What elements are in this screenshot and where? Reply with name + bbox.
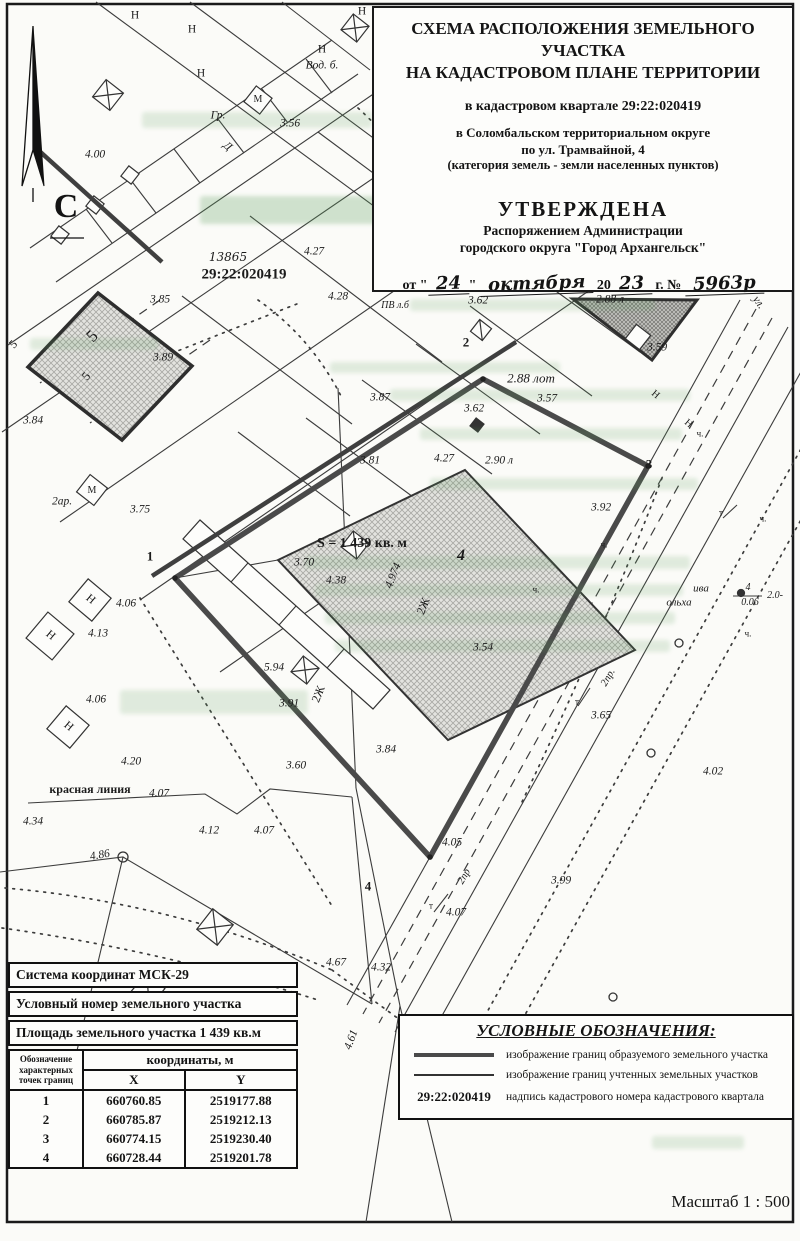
x-column-header: X [83,1070,185,1090]
boundary-point-cell: 1 [9,1090,83,1110]
map-label: т [719,509,723,518]
map-label: 4.07 [254,825,274,837]
map-label: 2.88 л [596,294,624,306]
map-label: 1 [147,550,154,563]
north-label: С [44,188,88,226]
boundary-point-cell: 2519212.13 [185,1110,297,1129]
map-label: Н [649,389,661,401]
map-label: S = 1 439 кв. м [317,537,407,551]
map-label: 4.61 [343,1029,361,1052]
boundary-point-cell: 2519177.88 [185,1090,297,1110]
legend-title: УСЛОВНЫЕ ОБОЗНАЧЕНИЯ: [400,1021,792,1041]
map-label: 3.62 [464,403,484,415]
legend-item-label: изображение границ образуемого земельног… [506,1049,768,1061]
map-label: ч. [697,430,704,439]
map-label: 3.87 [370,392,390,404]
map-label: 2.88 лот [507,372,555,385]
y-column-header: Y [185,1070,297,1090]
address-line: по ул. Трамвайной, 4 [374,142,792,158]
map-label: 2Ж [414,596,431,616]
map-label: 3.56 [280,118,300,130]
date-prefix: от " [403,278,428,293]
boundary-points-table: Обозначение характерных точек границ коо… [8,1049,298,1169]
map-label: 4.67 [326,957,346,969]
map-label: 4 [365,880,372,893]
map-label: 3.89 [153,352,173,364]
legend-item-label: надпись кадастрового номера кадастрового… [506,1091,764,1103]
map-label: 4 [746,583,751,593]
map-label: 3.85 [150,294,170,306]
map-label: ч. [745,630,752,639]
map-label: Н [358,6,366,18]
map-label: 3.99 [551,875,571,887]
map-label: 4.38 [326,575,346,587]
map-label: М [88,486,97,496]
map-label: 4.07 [446,907,466,919]
map-label: 4.07 [149,788,169,800]
map-label: Д [220,140,233,154]
map-label: 2пр. [600,667,618,688]
map-label: Н [197,68,205,80]
coordinates-column-header: координаты, м [83,1050,297,1070]
map-label: 4 [457,548,465,564]
coordinate-system-row: Система координат МСК-29 [8,962,298,988]
map-label: 2 [463,336,470,349]
map-label: 4.20 [121,756,141,768]
map-label: 3 [646,458,653,471]
map-label: ольха [666,598,691,609]
map-label: 5 [83,327,101,345]
number-prefix: г. № [655,278,681,293]
coordinates-table: Система координат МСК-29 Условный номер … [8,962,298,1169]
map-label: 4.86 [89,849,111,864]
map-label: 4.12 [199,825,219,837]
map-label: 3.84 [23,415,43,427]
map-label: Н [682,418,694,430]
map-label: 4.32 [371,962,391,974]
map-label: 4.34 [23,816,43,828]
map-label: 3.81 [360,455,380,467]
thick-line-symbol [402,1053,506,1057]
boundary-point-cell: 4 [9,1148,83,1168]
map-label: 5.94 [264,662,284,674]
points-column-header: Обозначение характерных точек границ [9,1050,83,1090]
map-label: 4.28 [328,291,348,303]
map-label: ПВ л.б [381,301,409,311]
map-label: 29:22:020419 [202,268,287,283]
map-label: Гр. [211,110,226,122]
legend: УСЛОВНЫЕ ОБОЗНАЧЕНИЯ: изображение границ… [398,1014,794,1120]
legend-item: изображение границ образуемого земельног… [402,1049,786,1061]
boundary-point-cell: 2 [9,1110,83,1129]
boundary-point-cell: 660760.85 [83,1090,185,1110]
boundary-point-row: 1660760.852519177.88 [9,1090,297,1110]
map-label: 3.75 [130,504,150,516]
map-label: 3.60 [286,760,306,772]
map-label: 4.13 [88,628,108,640]
map-label: ива [693,584,709,595]
map-label: 4.974 [384,562,404,590]
map-label: ул. [750,295,767,312]
map-label: Вод. б. [306,60,339,72]
map-label: 4.27 [304,246,324,258]
legend-item-label: изображение границ учтенных земельных уч… [506,1069,758,1081]
approval-year-handwritten: 23 [610,272,652,295]
map-label: красная линия [49,783,130,795]
cadastral-quarter-line: в кадастровом квартале 29:22:020419 [374,99,792,115]
boundary-point-cell: 660728.44 [83,1148,185,1168]
map-label: 4.00 [85,149,105,161]
map-label: 13865 [209,251,247,263]
map-label: 4.06 [86,694,106,706]
map-label: 3.62 [468,295,488,307]
map-label: 2Ж [309,684,326,704]
district-line: в Соломбальском территориальном округе [374,124,792,142]
map-label: т [575,698,579,707]
approval-number-handwritten: 5963р [684,272,763,297]
scanned-cadastral-sheet: 4.00НННННВод. б.Гр.3.56ДМ1386529:22:0204… [0,0,800,1241]
map-label: 3.84 [376,744,396,756]
year-prefix: 20 [597,278,611,293]
conditional-number-row: Условный номер земельного участка [8,991,298,1017]
approval-month-handwritten: октября [480,271,594,297]
map-label: 3.57 [537,393,557,405]
boundary-point-row: 4660728.442519201.78 [9,1148,297,1168]
map-label: Н [188,24,196,36]
date-close-quote: " [469,278,477,293]
land-category-line: (категория земель - земли населенных пун… [374,158,792,173]
map-label: 2пр [457,868,474,887]
approval-day-handwritten: 24 [427,272,469,295]
map-label: 5 [79,370,92,382]
boundary-point-cell: 2519230.40 [185,1129,297,1148]
boundary-point-cell: 3 [9,1129,83,1148]
boundary-point-cell: 2519201.78 [185,1148,297,1168]
map-label: Н [318,44,326,56]
map-label: 4.05 [442,837,462,849]
map-label: 0.06 [741,598,759,608]
map-label: 3.92 [591,502,611,514]
thin-line-symbol [402,1074,506,1076]
map-label: ч. [533,586,540,595]
approval-heading: УТВЕРЖДЕНА [374,197,792,222]
map-label: 2ар. [52,496,72,508]
map-label: ч. [601,541,608,550]
boundary-point-cell: 660774.15 [83,1129,185,1148]
legend-item: изображение границ учтенных земельных уч… [402,1069,786,1081]
approval-org-line1: Распоряжением Администрации [374,222,792,240]
map-label: 4.06 [116,598,136,610]
map-label: Н [131,10,139,22]
map-label: 3.59 [647,342,667,354]
plot-area-row: Площадь земельного участка 1 439 кв.м [8,1020,298,1046]
title-block: СХЕМА РАСПОЛОЖЕНИЯ ЗЕМЕЛЬНОГО УЧАСТКА НА… [372,6,794,292]
boundary-point-row: 2660785.872519212.13 [9,1110,297,1129]
scheme-title-line2: НА КАДАСТРОВОМ ПЛАНЕ ТЕРРИТОРИИ [374,62,792,84]
legend-items: изображение границ образуемого земельног… [400,1049,792,1105]
approval-org-line2: городского округа "Город Архангельск" [374,239,792,257]
cadastral-number-symbol: 29:22:020419 [402,1089,506,1105]
scale-label: Масштаб 1 : 500 [560,1192,790,1212]
map-label: 3.54 [473,642,493,654]
boundary-point-cell: 660785.87 [83,1110,185,1129]
map-label: ч. [760,515,767,524]
map-label: Н [61,720,75,734]
map-label: 4.02 [703,766,723,778]
boundary-point-row: 3660774.152519230.40 [9,1129,297,1148]
map-label: 3.70 [294,557,314,569]
map-label: Н [43,629,57,643]
map-label: 4.27 [434,453,454,465]
map-label: М [254,95,263,105]
map-label: 2.0- [767,591,783,601]
approval-date-line: от "24" октября 2023 г. № 5963р [374,273,792,295]
map-label: 3.91 [279,698,299,710]
map-label: 5 [7,338,20,351]
map-label: Н [83,593,97,607]
scheme-title-line1: СХЕМА РАСПОЛОЖЕНИЯ ЗЕМЕЛЬНОГО УЧАСТКА [374,18,792,62]
map-label: т [429,902,433,911]
legend-item: 29:22:020419надпись кадастрового номера … [402,1089,786,1105]
map-label: 3.65 [591,710,611,722]
map-label: 2.90 л [485,455,513,467]
